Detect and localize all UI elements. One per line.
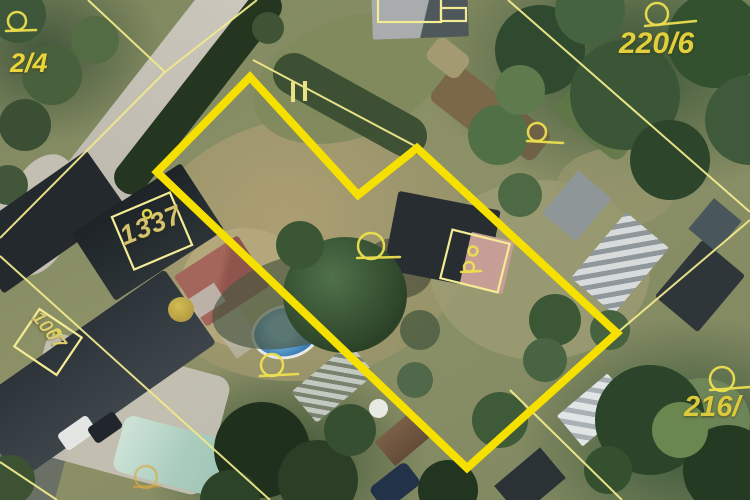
ownership-loop-icon — [135, 466, 157, 488]
ownership-loop-icon — [646, 3, 668, 25]
ownership-loop-icon — [261, 354, 283, 376]
ownership-loop-icon — [469, 247, 478, 256]
ownership-loop-tail — [710, 387, 750, 390]
building-outline — [441, 8, 466, 21]
ownership-loop-tail — [6, 30, 36, 31]
building-outline — [440, 230, 509, 293]
ownership-loop-tail — [461, 271, 481, 272]
parcel-label-2-4[interactable]: 2/4 — [10, 48, 48, 79]
thin-boundary-line — [88, 0, 165, 72]
thin-boundary-line — [0, 462, 57, 500]
ownership-loop-tail — [527, 141, 563, 143]
thin-boundary-line — [0, 256, 270, 500]
parcel-label-220-6[interactable]: 220/6 — [619, 27, 694, 61]
parcel-label-216[interactable]: 216/ — [684, 391, 740, 424]
building-outline — [378, 0, 441, 22]
ownership-loop-icon — [528, 123, 546, 141]
thin-boundary-line — [617, 220, 750, 333]
cadastral-linework — [0, 0, 750, 500]
ownership-loop-icon — [8, 12, 26, 30]
thin-boundary-line — [510, 390, 622, 500]
ownership-loop-icon — [358, 233, 384, 259]
ownership-loop-tail — [357, 257, 400, 258]
cadastral-map-viewport[interactable]: 2/4 220/6 1337 1007 216/ — [0, 0, 750, 500]
highlighted-parcel-outline[interactable] — [157, 77, 617, 468]
thin-boundary-line — [165, 0, 257, 72]
ownership-loop-tail — [134, 486, 160, 487]
